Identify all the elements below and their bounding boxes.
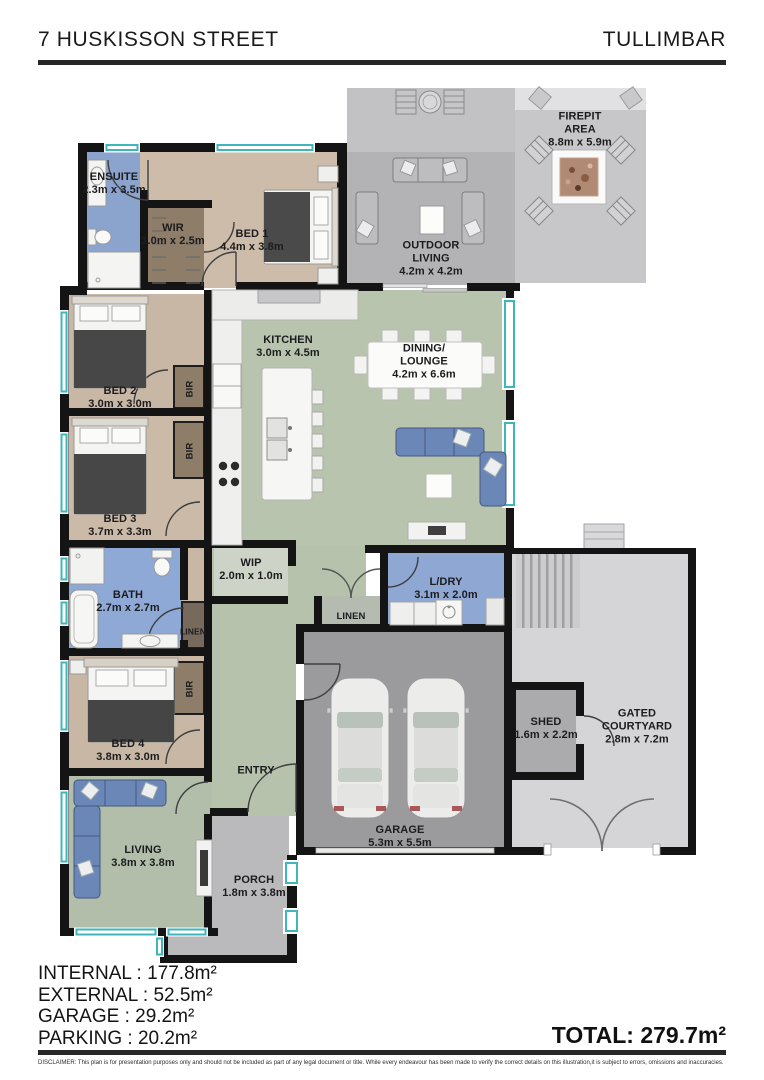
label-living: LIVING3.8m x 3.8m xyxy=(111,844,174,870)
label-bed2: BED 23.0m x 3.0m xyxy=(88,385,151,411)
label-wir: WIR1.0m x 2.5m xyxy=(141,222,204,248)
car-icon xyxy=(403,678,469,818)
floor-plan-page: 7 HUSKISSON STREET TULLIMBAR xyxy=(0,0,764,1080)
bed2-icon xyxy=(72,296,148,388)
header-divider xyxy=(38,60,726,65)
internal-area: INTERNAL : 177.8m² xyxy=(38,963,217,985)
garage-area: GARAGE : 29.2m² xyxy=(38,1006,217,1028)
suburb-title: TULLIMBAR xyxy=(603,28,726,52)
label-courtyard: GATEDCOURTYARD2.8m x 7.2m xyxy=(602,708,672,747)
label-outdoor-living: OUTDOORLIVING4.2m x 4.2m xyxy=(399,240,462,279)
label-wip: WIP2.0m x 1.0m xyxy=(219,557,282,583)
label-bath: BATH2.7m x 2.7m xyxy=(96,589,159,615)
label-shed: SHED1.6m x 2.2m xyxy=(514,716,577,742)
total-area: TOTAL: 279.7m² xyxy=(552,1022,726,1049)
label-kitchen: KITCHEN3.0m x 4.5m xyxy=(256,334,319,360)
external-area: EXTERNAL : 52.5m² xyxy=(38,985,217,1007)
label-firepit: FIREPITAREA8.8m x 5.9m xyxy=(548,111,611,150)
footer-divider xyxy=(38,1050,726,1055)
floor-plan-drawing xyxy=(0,0,764,1080)
label-bir-3: BIR xyxy=(184,681,197,698)
disclaimer: DISCLAIMER: This plan is for presentatio… xyxy=(38,1060,726,1066)
laundry-fixtures xyxy=(390,598,504,625)
label-porch: PORCH1.8m x 3.8m xyxy=(222,874,285,900)
area-summary: INTERNAL : 177.8m² EXTERNAL : 52.5m² GAR… xyxy=(38,963,217,1049)
label-bed1: BED 14.4m x 3.8m xyxy=(220,228,283,254)
label-ensuite: ENSUITE2.3m x 3.5m xyxy=(82,171,145,197)
label-entry: ENTRY xyxy=(237,765,274,778)
label-dining: DINING/LOUNGE4.2m x 6.6m xyxy=(392,343,455,382)
parking-area: PARKING : 20.2m² xyxy=(38,1028,217,1050)
entry-steps xyxy=(584,524,624,550)
label-bir-2: BIR xyxy=(184,443,197,460)
label-linen-center: LINEN xyxy=(337,612,366,622)
bed3-icon xyxy=(72,418,148,514)
label-bed4: BED 43.8m x 3.0m xyxy=(96,738,159,764)
car-icon xyxy=(327,678,393,818)
label-bir-1: BIR xyxy=(184,381,197,398)
label-linen-hall: LINEN xyxy=(180,628,206,637)
label-laundry: L/DRY3.1m x 2.0m xyxy=(414,576,477,602)
label-garage: GARAGE5.3m x 5.5m xyxy=(368,824,431,850)
label-bed3: BED 33.7m x 3.3m xyxy=(88,513,151,539)
page-title: 7 HUSKISSON STREET xyxy=(38,28,279,52)
